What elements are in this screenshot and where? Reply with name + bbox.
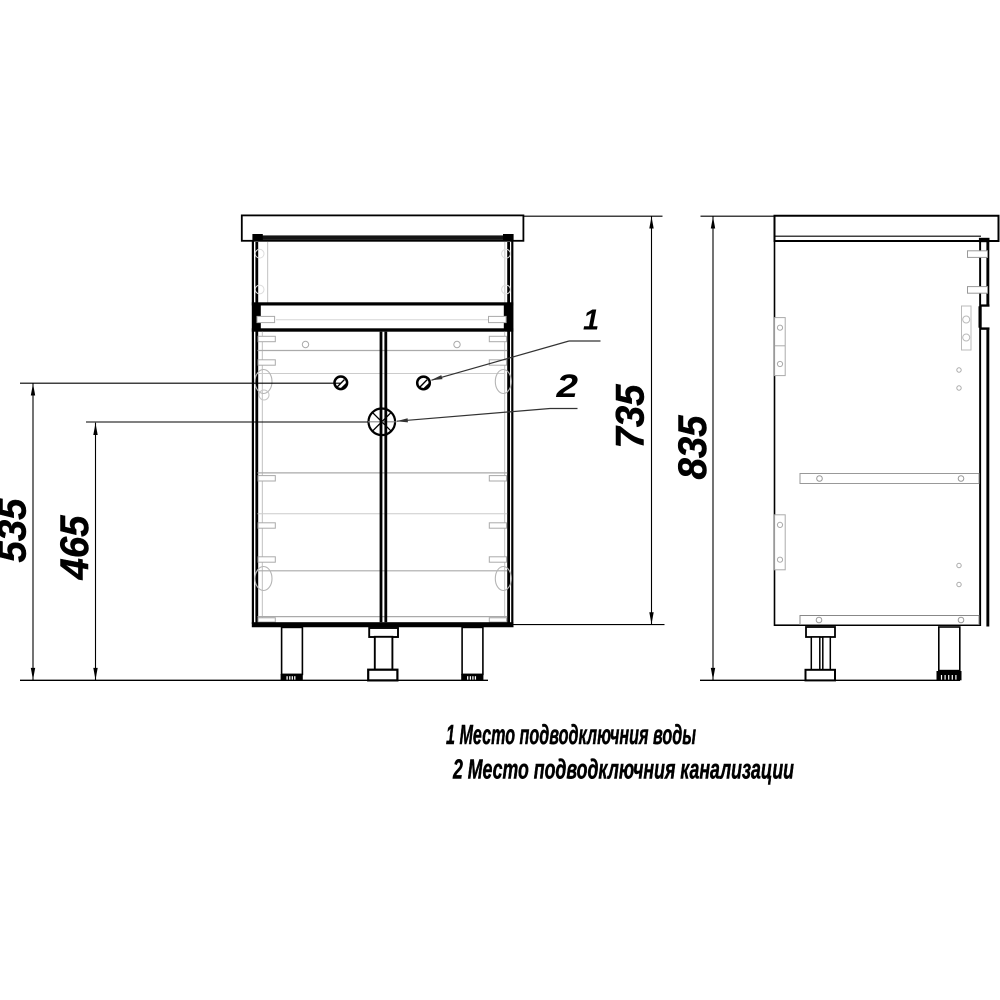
svg-text:2: 2 xyxy=(555,368,578,404)
svg-text:1 Место подводключния воды: 1 Место подводключния воды xyxy=(446,719,696,750)
svg-text:465: 465 xyxy=(53,515,97,581)
svg-text:2 Место подводключния канализа: 2 Место подводключния канализации xyxy=(452,754,794,785)
svg-text:835: 835 xyxy=(671,415,715,480)
svg-text:535: 535 xyxy=(0,498,35,563)
svg-text:735: 735 xyxy=(609,384,653,449)
svg-text:1: 1 xyxy=(583,305,599,337)
